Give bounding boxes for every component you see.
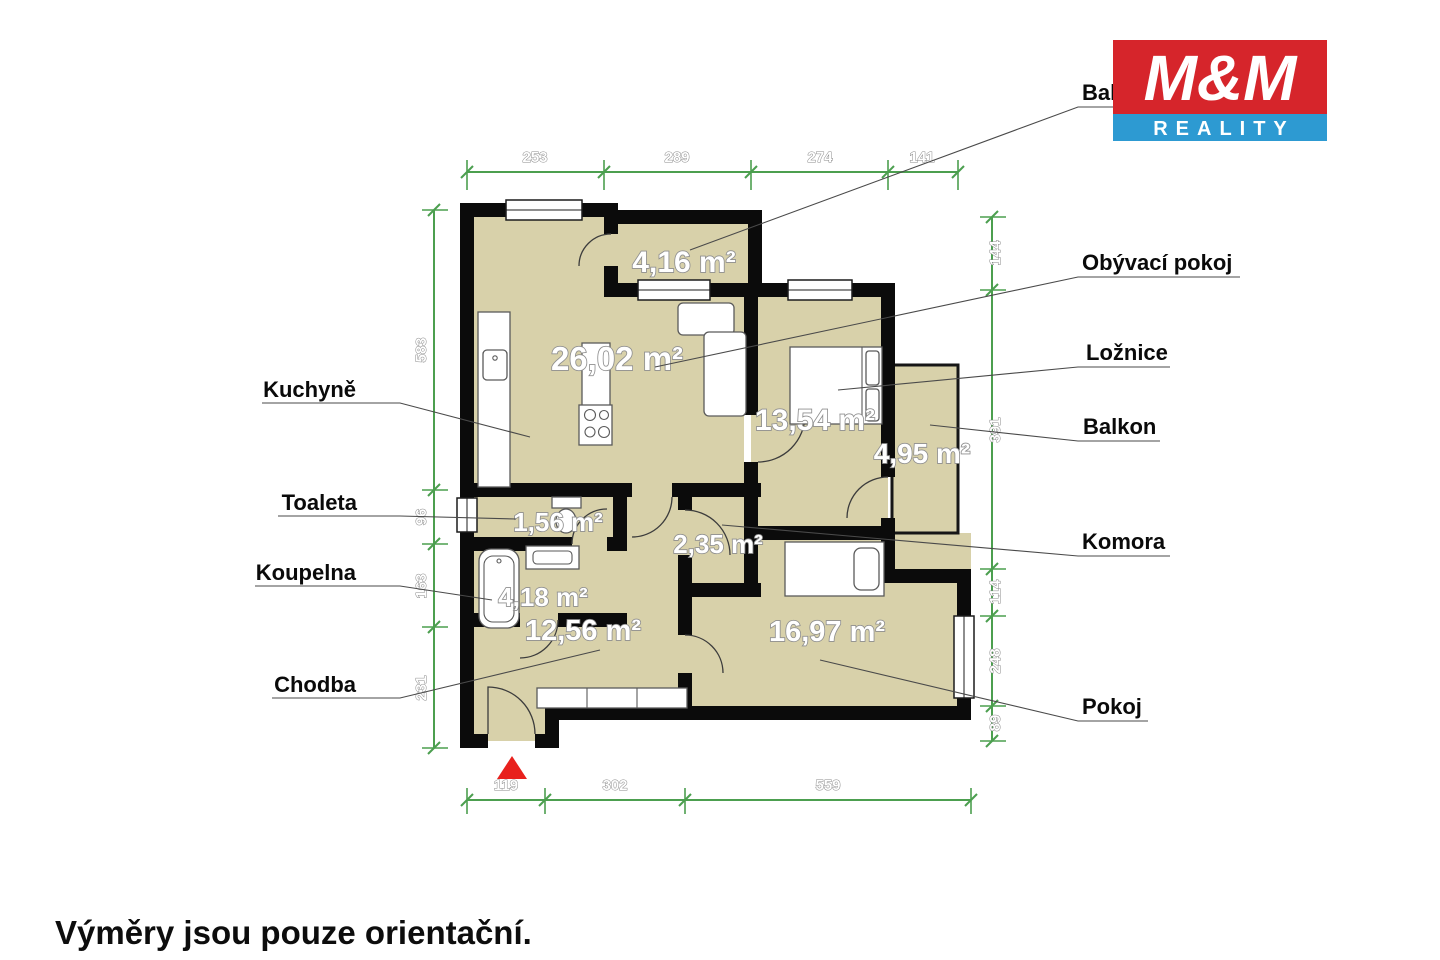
disclaimer-text: Výměry jsou pouze orientační. [55,914,532,951]
area-balkon-right: 4,95 m² [874,438,971,469]
area-loznice: 13,54 m² [755,404,875,437]
label-kuchyne: Kuchyně [263,377,356,402]
label-loznice: Ložnice [1086,340,1168,365]
dim-left-4: 231 [413,675,430,700]
dim-bottom-1: 119 [494,777,518,794]
area-pokoj: 16,97 m² [769,616,885,648]
logo-reality-text: REALITY [1153,118,1295,140]
entrance-marker-icon [497,756,527,779]
wardrobe [537,688,687,708]
dim-bottom-2: 302 [602,777,627,794]
label-balkon-right: Balkon [1083,414,1156,439]
label-chodba: Chodba [274,672,357,697]
kitchen-counter [478,312,510,487]
dim-left-3: 163 [413,573,430,598]
room-pokoj-a [685,590,971,713]
dim-right-1: 144 [987,240,1004,266]
label-toaleta: Toaleta [282,490,358,515]
dim-top-1: 253 [522,149,547,166]
floorplan-page: 253 289 274 141 119 302 559 583 96 163 2… [0,0,1440,960]
dim-right-3: 114 [987,579,1004,604]
window-living-balkon [638,280,710,300]
dim-left-1: 583 [413,337,430,362]
dim-right-2: 391 [987,417,1004,442]
window-living-top [506,200,582,220]
dim-right-5: 89 [987,715,1004,732]
window-loznice [788,280,852,300]
label-komora: Komora [1082,529,1166,554]
window-pokoj [954,616,974,698]
area-balkon-top: 4,16 m² [632,246,735,279]
logo-mm-text: M&M [1144,42,1299,114]
label-pokoj: Pokoj [1082,694,1142,719]
area-koupelna: 4,18 m² [498,582,588,612]
dim-bottom-3: 559 [815,777,840,794]
single-bed [785,542,884,596]
floorplan-drawing: 253 289 274 141 119 302 559 583 96 163 2… [0,0,1440,960]
dim-right-4: 248 [987,648,1004,673]
dim-top-2: 289 [664,149,689,166]
window-toaleta [457,498,477,532]
area-chodba: 12,56 m² [525,615,641,647]
dim-top-4: 141 [909,149,934,166]
area-toaleta: 1,56 m² [513,507,603,537]
dim-top-3: 274 [807,149,833,166]
area-obyvaci-pokoj: 26,02 m² [551,340,683,377]
bathroom-sink [526,546,579,569]
mm-reality-logo: M&M REALITY [1113,40,1327,141]
label-koupelna: Koupelna [256,560,357,585]
area-komora: 2,35 m² [673,529,763,559]
label-obyvaci-pokoj: Obývací pokoj [1082,250,1232,275]
